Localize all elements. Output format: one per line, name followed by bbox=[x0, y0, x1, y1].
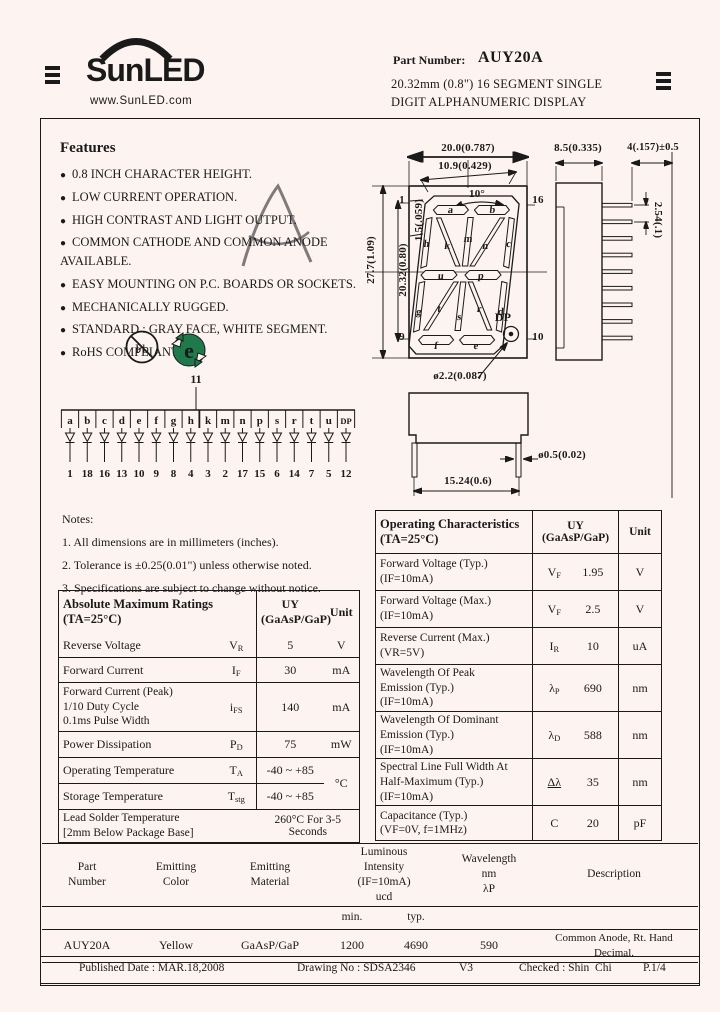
diode-icon bbox=[238, 433, 247, 442]
website-url: www.SunLED.com bbox=[90, 95, 192, 107]
dim-top-width: 20.0(0.787) bbox=[403, 142, 533, 154]
glyph-segment-letter: u bbox=[437, 271, 444, 282]
table-row: Capacitance (Typ.) (VF=0V, f=1MHz) C20 p… bbox=[376, 806, 662, 841]
dim-seg-thickness: 1.5(.059) bbox=[413, 182, 425, 258]
param-cell: Power Dissipation bbox=[59, 732, 217, 758]
param-cell: Forward Voltage (Typ.) (IF=10mA) bbox=[376, 554, 533, 591]
right-bars-icon bbox=[656, 72, 671, 93]
solder-value-cell: 260°C For 3-5 Seconds bbox=[257, 810, 360, 843]
symbol-cell: VR bbox=[217, 633, 257, 658]
features-section: Features ●0.8 INCH CHARACTER HEIGHT. ●LO… bbox=[60, 140, 360, 366]
diode-icon bbox=[324, 433, 333, 442]
segment-letter: n bbox=[239, 415, 245, 427]
unit-cell: mW bbox=[324, 732, 360, 758]
value-cell: -40 ~ +85 bbox=[257, 784, 324, 810]
dim-pin-length: 4(.157)±0.5 bbox=[608, 142, 698, 153]
notes-title: Notes: bbox=[62, 508, 321, 531]
pin-number: 2 bbox=[223, 468, 229, 480]
min-header-cell: min. bbox=[320, 906, 384, 929]
glyph-segment-letter: e bbox=[473, 341, 479, 352]
symbol-cell: TA bbox=[217, 758, 257, 784]
pin-number: 9 bbox=[154, 468, 160, 480]
bullet-icon: ● bbox=[60, 303, 66, 314]
diode-icon bbox=[273, 433, 282, 442]
pin-number: 14 bbox=[289, 468, 301, 480]
table-title-cell: Operating Characteristics (TA=25°C) bbox=[376, 511, 533, 554]
param-cell: Forward Voltage (Max.) (IF=10mA) bbox=[376, 591, 533, 628]
segment-letter: c bbox=[102, 415, 107, 427]
value-header-cell: UY (GaAsP/GaP) bbox=[257, 591, 324, 634]
symbol-value-cell: C20 bbox=[533, 806, 619, 841]
table-title-cell: Absolute Maximum Ratings (TA=25°C) bbox=[59, 591, 257, 634]
pin-number: 16 bbox=[99, 468, 111, 480]
bullet-icon: ● bbox=[60, 348, 66, 359]
param-cell: Spectral Line Full Width At Half-Maximum… bbox=[376, 759, 533, 806]
part-number-value: AUY20A bbox=[478, 49, 543, 67]
table-subheader-row: min. typ. bbox=[42, 906, 698, 929]
param-cell: Storage Temperature bbox=[59, 784, 217, 810]
dim-pin-diameter: ø0.5(0.02) bbox=[512, 449, 612, 461]
dim-outer-height: 27.7(1.09) bbox=[365, 220, 377, 300]
drawing-number: Drawing No : SDSA2346 bbox=[297, 962, 416, 974]
param-cell: Wavelength Of Peak Emission (Typ.) (IF=1… bbox=[376, 665, 533, 712]
common-pin-label: 11 bbox=[190, 372, 201, 386]
unit-cell: pF bbox=[619, 806, 662, 841]
table-row: Lead Solder Temperature [2mm Below Packa… bbox=[59, 810, 360, 843]
notes-section: Notes: 1. All dimensions are in millimet… bbox=[62, 508, 321, 600]
unit-cell: nm bbox=[619, 712, 662, 759]
table-row: Forward Current (Peak) 1/10 Duty Cycle 0… bbox=[59, 683, 360, 732]
value-cell: 30 bbox=[257, 658, 324, 683]
table-row: Spectral Line Full Width At Half-Maximum… bbox=[376, 759, 662, 806]
table-row: Reverse Voltage VR 5 V bbox=[59, 633, 360, 658]
operating-characteristics-table: Operating Characteristics (TA=25°C) UY (… bbox=[375, 510, 662, 841]
value-cell: 140 bbox=[257, 683, 324, 732]
dim-bottom-width: 15.24(0.6) bbox=[408, 475, 528, 487]
value-cell: -40 ~ +85 bbox=[257, 758, 324, 784]
unit-cell: V bbox=[619, 554, 662, 591]
lead-free-icon: Pb bbox=[124, 329, 160, 365]
footer-bar: Published Date : MAR.18,2008 Drawing No … bbox=[40, 956, 700, 984]
part-number-label: Part Number: bbox=[393, 53, 465, 68]
table-row: Forward Voltage (Max.) (IF=10mA) VF2.5 V bbox=[376, 591, 662, 628]
dim-pin-pitch: 2.54(.1) bbox=[652, 191, 664, 249]
segment-letter: r bbox=[292, 415, 297, 427]
pin-number: 18 bbox=[82, 468, 94, 480]
absolute-maximum-ratings-table: Absolute Maximum Ratings (TA=25°C) UY (G… bbox=[58, 590, 360, 843]
left-bars-icon bbox=[45, 66, 60, 87]
param-cell: Wavelength Of Dominant Emission (Typ.) (… bbox=[376, 712, 533, 759]
pin-9-label: 9 bbox=[396, 331, 408, 343]
header-cell: Wavelength nm λP bbox=[448, 844, 530, 907]
pin-number: 1 bbox=[67, 468, 73, 480]
bullet-icon: ● bbox=[60, 170, 66, 181]
segment-letter: u bbox=[326, 415, 332, 427]
symbol-cell: iFS bbox=[217, 683, 257, 732]
feature-item: ●HIGH CONTRAST AND LIGHT OUTPUT. bbox=[60, 211, 360, 230]
unit-cell: nm bbox=[619, 665, 662, 712]
feature-item: ●LOW CURRENT OPERATION. bbox=[60, 188, 360, 207]
diode-icon bbox=[169, 433, 178, 442]
published-date: Published Date : MAR.18,2008 bbox=[79, 962, 224, 974]
table-row: Reverse Current (Max.) (VR=5V) IR10 uA bbox=[376, 628, 662, 665]
symbol-cell: PD bbox=[217, 732, 257, 758]
pin-number: 7 bbox=[309, 468, 315, 480]
segment-letter: k bbox=[205, 415, 212, 427]
value-cell: 75 bbox=[257, 732, 324, 758]
feature-item: ●EASY MOUNTING ON P.C. BOARDS OR SOCKETS… bbox=[60, 275, 360, 294]
table-row: Wavelength Of Dominant Emission (Typ.) (… bbox=[376, 712, 662, 759]
param-cell: Reverse Current (Max.) (VR=5V) bbox=[376, 628, 533, 665]
symbol-value-cell: VF1.95 bbox=[533, 554, 619, 591]
unit-cell: V bbox=[619, 591, 662, 628]
unit-cell: °C bbox=[324, 758, 360, 810]
diode-icon bbox=[221, 433, 230, 442]
diode-icon bbox=[83, 433, 92, 442]
diode-icon bbox=[135, 433, 144, 442]
segment-letter: h bbox=[188, 415, 194, 427]
diode-icon bbox=[100, 433, 109, 442]
pin-1-label: 1 bbox=[396, 194, 408, 206]
rohs-e-icon: e bbox=[170, 331, 208, 369]
header-cell: Luminous Intensity (IF=10mA) ucd bbox=[320, 844, 448, 907]
feature-item: ●MECHANICALLY RUGGED. bbox=[60, 298, 360, 317]
pin-10-label: 10 bbox=[528, 331, 548, 343]
dim-dp-diameter: ø2.2(0.087) bbox=[400, 370, 520, 382]
diode-icon bbox=[204, 433, 213, 442]
dim-inner-height: 20.32(0.80) bbox=[397, 224, 409, 316]
header-cell: Part Number bbox=[42, 844, 132, 907]
bullet-icon: ● bbox=[60, 193, 66, 204]
note-item: 2. Tolerance is ±0.25(0.01") unless othe… bbox=[62, 554, 321, 577]
header-cell: Emitting Material bbox=[220, 844, 320, 907]
pin-number: 17 bbox=[237, 468, 249, 480]
pin-number: 13 bbox=[116, 468, 128, 480]
segment-letter: s bbox=[275, 415, 280, 427]
features-title: Features bbox=[60, 140, 360, 157]
table-row: Storage Temperature Tstg -40 ~ +85 bbox=[59, 784, 360, 810]
symbol-value-cell: λD588 bbox=[533, 712, 619, 759]
symbol-value-cell: VF2.5 bbox=[533, 591, 619, 628]
pin-number: 5 bbox=[326, 468, 332, 480]
value-cell: 5 bbox=[257, 633, 324, 658]
pin-number: 15 bbox=[254, 468, 266, 480]
pin-number: 3 bbox=[205, 468, 211, 480]
header-cell: Description bbox=[530, 844, 698, 907]
version-label: V3 bbox=[459, 962, 473, 974]
segment-letter: b bbox=[84, 415, 90, 427]
bullet-icon: ● bbox=[60, 216, 66, 227]
dp-label: DP bbox=[490, 310, 516, 325]
table-row: Forward Current IF 30 mA bbox=[59, 658, 360, 683]
table-row: Operating Temperature TA -40 ~ +85 °C bbox=[59, 758, 360, 784]
note-item: 1. All dimensions are in millimeters (in… bbox=[62, 531, 321, 554]
diode-icon bbox=[307, 433, 316, 442]
dim-inner-width: 10.9(0.429) bbox=[402, 160, 528, 172]
feature-item: ●STANDARD : GRAY FACE, WHITE SEGMENT. bbox=[60, 320, 360, 339]
unit-cell: V bbox=[324, 633, 360, 658]
glyph-segment-letter: m bbox=[463, 234, 473, 245]
page-number: P.1/4 bbox=[643, 962, 666, 974]
segment-letter: e bbox=[137, 415, 142, 427]
diode-icon bbox=[152, 433, 161, 442]
pin-number: 6 bbox=[274, 468, 280, 480]
pin-connection-diagram: 11 a1b18c16d13e10f9g8h4k3m2n17p15s6r14t7… bbox=[55, 370, 385, 485]
feature-item: ●RoHS COMPLIANT. bbox=[60, 343, 360, 362]
part-summary-table: Part Number Emitting Color Emitting Mate… bbox=[42, 843, 698, 963]
param-cell: Operating Temperature bbox=[59, 758, 217, 784]
table-row: Power Dissipation PD 75 mW bbox=[59, 732, 360, 758]
param-cell: Reverse Voltage bbox=[59, 633, 217, 658]
svg-text:e: e bbox=[184, 338, 194, 363]
typ-header-cell: typ. bbox=[384, 906, 448, 929]
header-cell: Emitting Color bbox=[132, 844, 220, 907]
features-list: ●0.8 INCH CHARACTER HEIGHT. ●LOW CURRENT… bbox=[60, 165, 360, 362]
glyph-segment-letter: f bbox=[433, 341, 438, 352]
param-cell: Forward Current (Peak) 1/10 Duty Cycle 0… bbox=[59, 683, 217, 732]
symbol-value-cell: IR10 bbox=[533, 628, 619, 665]
unit-cell: nm bbox=[619, 759, 662, 806]
pin-16-label: 16 bbox=[528, 194, 548, 206]
glyph-segment-letter: n bbox=[482, 241, 489, 252]
dim-angle: 10° bbox=[459, 188, 495, 200]
bullet-icon: ● bbox=[60, 280, 66, 291]
solder-label-cell: Lead Solder Temperature [2mm Below Packa… bbox=[59, 810, 257, 843]
feature-item: ●0.8 INCH CHARACTER HEIGHT. bbox=[60, 165, 360, 184]
diode-icon bbox=[255, 433, 264, 442]
brand-logo: SunLED bbox=[86, 52, 204, 89]
pin-number: 10 bbox=[134, 468, 146, 480]
pin-number: 4 bbox=[188, 468, 194, 480]
diode-icon bbox=[290, 433, 299, 442]
segment-letter: t bbox=[310, 415, 314, 427]
checked-by: Checked : Shin Chi bbox=[519, 962, 612, 974]
description-line1: 20.32mm (0.8") 16 SEGMENT SINGLE bbox=[391, 77, 602, 92]
diode-icon bbox=[117, 433, 126, 442]
symbol-cell: Tstg bbox=[217, 784, 257, 810]
unit-cell: mA bbox=[324, 683, 360, 732]
table-row: Wavelength Of Peak Emission (Typ.) (IF=1… bbox=[376, 665, 662, 712]
param-cell: Forward Current bbox=[59, 658, 217, 683]
segment-letter: f bbox=[154, 415, 158, 427]
bullet-icon: ● bbox=[60, 238, 66, 249]
segment-letter: g bbox=[171, 415, 177, 427]
param-cell: Capacitance (Typ.) (VF=0V, f=1MHz) bbox=[376, 806, 533, 841]
symbol-value-cell: Δλ35 bbox=[533, 759, 619, 806]
segment-letter: a bbox=[67, 415, 73, 427]
bullet-icon: ● bbox=[60, 325, 66, 336]
unit-header-cell: Unit bbox=[619, 511, 662, 554]
table-row: Forward Voltage (Typ.) (IF=10mA) VF1.95 … bbox=[376, 554, 662, 591]
pin-number: 8 bbox=[171, 468, 177, 480]
segment-letter: m bbox=[221, 415, 230, 427]
symbol-cell: IF bbox=[217, 658, 257, 683]
table-header-row: Absolute Maximum Ratings (TA=25°C) UY (G… bbox=[59, 591, 360, 634]
description-line2: DIGIT ALPHANUMERIC DISPLAY bbox=[391, 95, 587, 110]
datasheet-page: SunLED www.SunLED.com Part Number: AUY20… bbox=[0, 0, 720, 1012]
feature-item: ●COMMON CATHODE AND COMMON ANODE AVAILAB… bbox=[60, 233, 360, 271]
unit-cell: uA bbox=[619, 628, 662, 665]
unit-cell: mA bbox=[324, 658, 360, 683]
diode-icon bbox=[186, 433, 195, 442]
segment-letter: d bbox=[119, 415, 125, 427]
table-header-row: Part Number Emitting Color Emitting Mate… bbox=[42, 844, 698, 907]
diode-icon bbox=[66, 433, 75, 442]
symbol-value-cell: λP690 bbox=[533, 665, 619, 712]
table-header-row: Operating Characteristics (TA=25°C) UY (… bbox=[376, 511, 662, 554]
segment-letter: p bbox=[257, 415, 263, 427]
glyph-segment-letter: p bbox=[477, 271, 484, 282]
value-header-cell: UY (GaAsP/GaP) bbox=[533, 511, 619, 554]
